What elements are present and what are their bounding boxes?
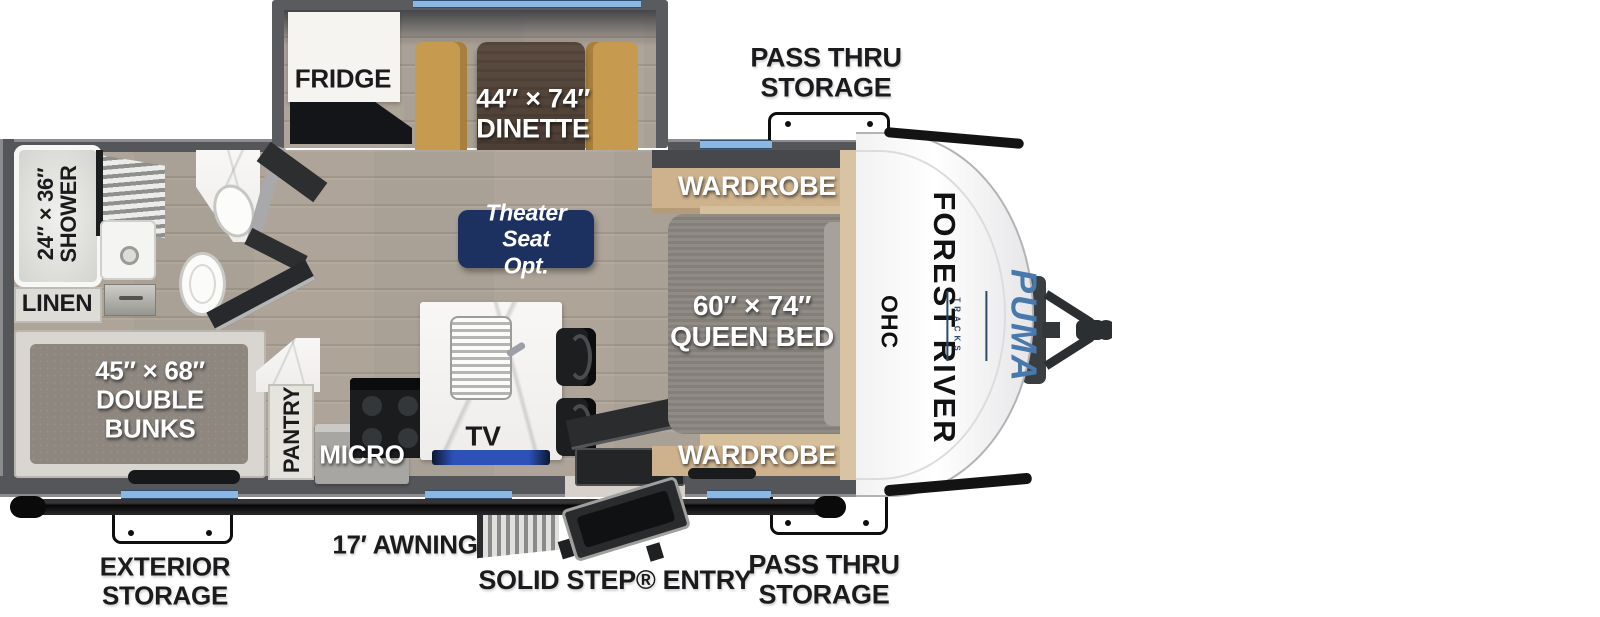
dinette-label: 44″ × 74″ DINETTE — [476, 84, 590, 143]
window-bottom-3 — [707, 490, 771, 499]
shower-pan — [100, 220, 156, 280]
fridge-label: FRIDGE — [295, 65, 391, 94]
awning-label: 17′ AWNING — [332, 531, 477, 560]
theater-seat-badge: Theater Seat Opt. — [458, 210, 594, 268]
exterior-storage-label: EXTERIOR STORAGE — [100, 552, 231, 609]
theater-seat-label: Theater Seat Opt. — [486, 199, 567, 278]
window-bottom-2 — [425, 490, 512, 499]
solid-step-entry-label: SOLID STEP® ENTRY — [478, 566, 751, 596]
step-foot-1 — [646, 542, 664, 561]
awning-bar — [12, 499, 842, 515]
slide-window — [413, 0, 641, 8]
floorplan-stage: Theater Seat Opt. FRIDGE 44″ × 74″ DINET… — [0, 0, 1600, 617]
puma-series: TRACKS — [952, 297, 961, 354]
puma-logo: PUMA TRACKS — [947, 251, 1058, 401]
pass-thru-storage-label-bottom: PASS THRU STORAGE — [748, 550, 899, 609]
shower-label: 24″ × 36″ SHOWER — [34, 165, 80, 262]
island-sink — [450, 316, 512, 400]
tv-label: TV — [465, 422, 500, 453]
wardrobe-top-label: WARDROBE — [678, 172, 836, 202]
wardrobe-bottom-label: WARDROBE — [678, 441, 836, 471]
bath-dresser — [104, 284, 156, 316]
bunks-handle — [128, 470, 240, 484]
exterior-storage-door — [112, 514, 233, 544]
micro-label: MICRO — [319, 441, 404, 470]
stool-1 — [556, 328, 596, 386]
window-top-right — [700, 140, 772, 149]
pass-thru-storage-label-top: PASS THRU STORAGE — [750, 43, 901, 102]
queen-bed-label: 60″ × 74″ QUEEN BED — [670, 291, 834, 353]
wall-left — [0, 139, 14, 497]
window-bottom-1 — [121, 490, 238, 499]
bunks-label: 45″ × 68″ DOUBLE BUNKS — [95, 356, 205, 443]
ohc-label: OHC — [876, 295, 901, 349]
pantry-label: PANTRY — [280, 387, 304, 473]
puma-label: PUMA — [1007, 251, 1039, 401]
stove-burners — [362, 396, 382, 416]
linen-label: LINEN — [22, 291, 93, 317]
puma-series-wrap: TRACKS — [947, 291, 988, 360]
